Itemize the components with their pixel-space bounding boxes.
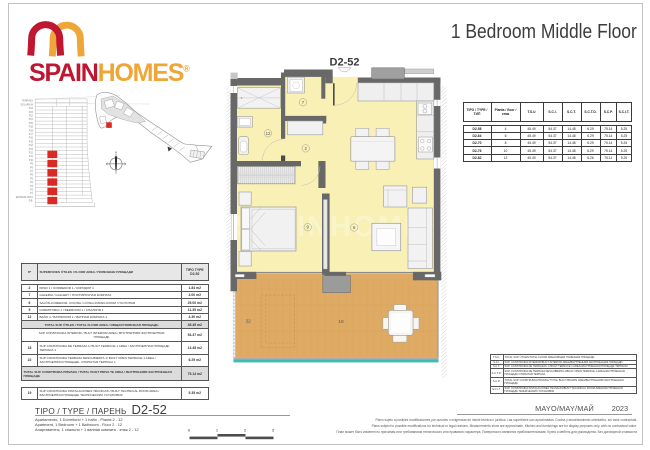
svg-text:P.B.: P.B. [29, 200, 34, 203]
svg-text:22: 22 [246, 319, 252, 325]
svg-text:P16: P16 [29, 137, 34, 140]
svg-text:P7: P7 [30, 170, 34, 173]
svg-text:P9: P9 [30, 163, 34, 166]
svg-text:TERRAZA: TERRAZA [22, 100, 34, 103]
svg-text:P5: P5 [30, 177, 34, 180]
svg-text:12: 12 [266, 131, 271, 136]
svg-text:1: 1 [216, 428, 219, 433]
svg-text:P23: P23 [29, 111, 34, 114]
svg-text:P4: P4 [30, 181, 34, 184]
svg-text:P15: P15 [29, 140, 34, 143]
svg-text:P14: P14 [29, 144, 34, 147]
svg-text:P22: P22 [29, 115, 34, 118]
svg-text:P17: P17 [29, 133, 34, 136]
svg-text:P13: P13 [29, 148, 34, 151]
svg-text:0: 0 [188, 428, 191, 433]
svg-text:P1: P1 [30, 192, 34, 195]
svg-text:N: N [115, 150, 117, 154]
svg-text:P2: P2 [30, 189, 34, 192]
svg-text:P19: P19 [29, 126, 34, 129]
svg-text:P11: P11 [29, 155, 34, 158]
svg-text:ENTREPLANTA: ENTREPLANTA [16, 196, 34, 199]
svg-text:18: 18 [338, 319, 344, 325]
svg-text:P3: P3 [30, 185, 34, 188]
svg-text:P20: P20 [29, 122, 34, 125]
svg-text:P10: P10 [29, 159, 34, 162]
svg-text:3: 3 [272, 428, 275, 433]
svg-text:P21: P21 [29, 118, 34, 121]
svg-text:P24: P24 [29, 107, 34, 110]
svg-text:P12: P12 [29, 152, 34, 155]
svg-text:P18: P18 [29, 129, 34, 132]
svg-text:P8: P8 [30, 166, 34, 169]
svg-text:SOLARIUM: SOLARIUM [21, 103, 34, 106]
svg-text:P6: P6 [30, 174, 34, 177]
svg-text:2: 2 [244, 428, 247, 433]
svg-text:D2-52: D2-52 [330, 57, 360, 69]
